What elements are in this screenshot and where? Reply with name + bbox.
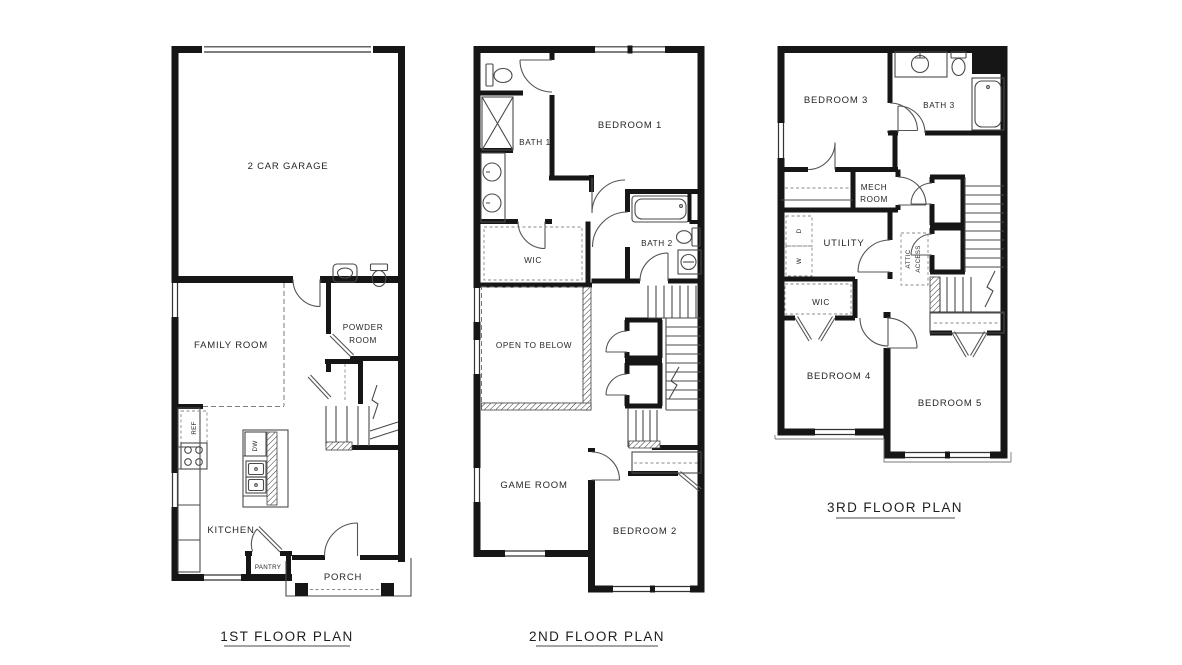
bedroom3-label: BEDROOM 3 xyxy=(804,95,868,106)
washer-dryer-icons xyxy=(786,216,812,276)
toilet-icon xyxy=(371,264,388,287)
kitchen-label: KITCHEN xyxy=(207,525,254,536)
tub-icon xyxy=(972,78,1004,130)
toilet-icon xyxy=(486,64,512,86)
kitchen-island xyxy=(243,430,288,507)
wic-label: WIC xyxy=(812,298,830,307)
open-to-below-label: OPEN TO BELOW xyxy=(496,341,572,350)
porch-label: PORCH xyxy=(324,572,362,583)
bedroom4-label: BEDROOM 4 xyxy=(807,371,871,382)
double-sink-icon xyxy=(481,153,505,222)
floor-plan-drawing: 2 CAR GARAGE FAMILY ROOM POWDER ROOM KIT… xyxy=(0,0,1182,665)
linen-closet xyxy=(972,52,1004,74)
first-floor-plan: 2 CAR GARAGE FAMILY ROOM POWDER ROOM KIT… xyxy=(172,46,412,646)
bedroom2-closet xyxy=(632,452,701,473)
garage-door xyxy=(204,47,371,52)
second-floor-title: 2ND FLOOR PLAN xyxy=(529,629,665,644)
bath2-label: BATH 2 xyxy=(641,239,673,248)
bath3-label: BATH 3 xyxy=(923,101,955,110)
door-arcs xyxy=(251,280,357,557)
bedroom2-label: BEDROOM 2 xyxy=(613,526,677,537)
bath1-label: BATH 1 xyxy=(519,138,551,147)
game-room-label: GAME ROOM xyxy=(500,480,567,491)
powder-room-fixtures xyxy=(333,264,388,287)
garage-label: 2 CAR GARAGE xyxy=(248,161,329,172)
third-floor-title: 3RD FLOOR PLAN xyxy=(827,500,963,515)
exterior-walls xyxy=(778,46,1008,459)
utility-label: UTILITY xyxy=(824,238,865,249)
powder-room-label-line2: ROOM xyxy=(349,336,377,345)
attic-access-label-line1: ATTIC xyxy=(905,249,912,268)
attic-access-label-line2: ACCESS xyxy=(915,245,922,272)
mech-room-label-line2: ROOM xyxy=(860,195,888,204)
stairs xyxy=(930,177,1004,313)
bedroom5-closet xyxy=(930,312,1004,333)
bath2-fixtures xyxy=(632,194,701,274)
dw-label: DW xyxy=(252,441,259,452)
sink-icon xyxy=(895,52,947,77)
third-floor-plan: BEDROOM 3 BATH 3 MECH ROOM UTILITY D W A… xyxy=(775,46,1011,518)
bedroom1-label: BEDROOM 1 xyxy=(598,120,662,131)
wic-label: WIC xyxy=(524,256,542,265)
mech-room-label-line1: MECH xyxy=(861,183,888,192)
bath3-fixtures xyxy=(895,52,1004,130)
wic-shelving-dashed xyxy=(484,227,582,280)
pantry-label: PANTRY xyxy=(255,564,281,571)
floor-plan-sheet: 2 CAR GARAGE FAMILY ROOM POWDER ROOM KIT… xyxy=(0,0,1182,665)
powder-room-label-line1: POWDER xyxy=(343,323,383,332)
bedroom5-label: BEDROOM 5 xyxy=(918,398,982,409)
bath1-fixtures xyxy=(481,64,513,222)
first-floor-title: 1ST FLOOR PLAN xyxy=(220,629,353,644)
toilet-icon xyxy=(951,52,966,76)
interior-walls xyxy=(778,46,1005,333)
dryer-label: D xyxy=(796,228,803,233)
washer-label: W xyxy=(796,258,803,264)
second-floor-plan: BATH 1 BEDROOM 1 WIC BATH 2 OPEN TO BELO… xyxy=(474,46,705,647)
stairs xyxy=(628,286,701,449)
shower-icon xyxy=(482,97,513,150)
bedroom3-closet xyxy=(781,188,853,200)
kitchen-sink-icon xyxy=(246,461,266,493)
toilet-icon xyxy=(677,228,701,246)
tub-icon xyxy=(632,196,689,222)
family-room-label: FAMILY ROOM xyxy=(194,340,268,351)
ref-label: REF xyxy=(191,421,198,434)
